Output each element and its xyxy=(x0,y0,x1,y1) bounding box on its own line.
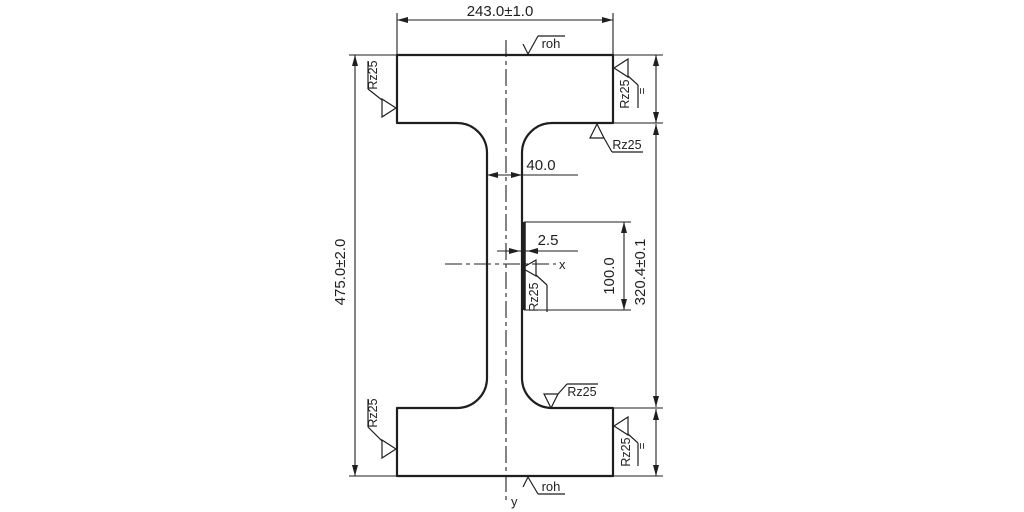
roughness-symbol-above-bottom-flange: Rz25 xyxy=(544,384,598,408)
roughness-symbol-bottom-right-face: Rz25 = xyxy=(614,417,649,467)
axis-label-x: x xyxy=(559,257,566,272)
dim-value-overall-height: 475.0±2.0 xyxy=(332,239,349,306)
arrow-left-icon xyxy=(527,248,538,254)
dim-overall-height: 475.0±2.0 xyxy=(332,55,396,476)
arrow-down-icon xyxy=(621,299,627,310)
roughness-check-icon xyxy=(528,477,538,494)
roughness-triangle-icon xyxy=(544,394,558,408)
roughness-value: Rz25 xyxy=(366,60,380,89)
arrow-down-icon xyxy=(653,112,659,123)
leader-line xyxy=(558,384,567,394)
arrow-left-icon xyxy=(397,17,408,23)
arrow-up-icon xyxy=(653,124,659,135)
drawing-canvas: x y 243.0±1.0 475.0±2.0 40.0 2.5 xyxy=(0,0,1024,512)
roughness-triangle-icon xyxy=(382,99,396,117)
roughness-value: Rz25 xyxy=(612,138,641,152)
arrow-right-icon xyxy=(511,172,522,178)
dim-web-width: 40.0 xyxy=(487,157,578,178)
raw-surface-label: roh xyxy=(542,479,561,494)
leader-line xyxy=(368,89,382,100)
roughness-value: Rz25 xyxy=(527,282,541,311)
arrow-up-icon xyxy=(653,409,659,420)
arrow-down-icon xyxy=(653,465,659,476)
centerlines: x y xyxy=(445,40,566,509)
roughness-triangle-icon xyxy=(614,417,628,435)
roughness-triangle-icon xyxy=(590,124,604,138)
roughness-check-icon xyxy=(523,44,528,54)
leader-line xyxy=(368,427,382,441)
roughness-symbol-bottom-left: Rz25 xyxy=(366,398,396,458)
roughness-value: Rz25 xyxy=(567,385,596,399)
arrow-up-icon xyxy=(352,55,358,66)
roughness-check-icon xyxy=(528,36,538,54)
arrow-left-icon xyxy=(487,172,498,178)
beam-profile xyxy=(397,55,613,476)
leader-line xyxy=(604,138,612,152)
raw-surface-label: roh xyxy=(542,36,561,51)
roughness-value: Rz25 xyxy=(618,79,632,108)
roughness-symbol-top-right-face: Rz25 = xyxy=(614,59,649,109)
arrow-right-icon xyxy=(509,248,520,254)
arrow-up-icon xyxy=(653,55,659,66)
dim-seam-thickness: 2.5 xyxy=(497,232,578,254)
lay-direction-symbol: = xyxy=(635,442,649,449)
ibeam-outline xyxy=(397,55,613,476)
arrow-down-icon xyxy=(653,396,659,407)
roughness-check-icon xyxy=(523,477,528,487)
arrow-right-icon xyxy=(602,17,613,23)
roughness-triangle-icon xyxy=(382,440,396,458)
roughness-value: Rz25 xyxy=(366,398,380,427)
arrow-up-icon xyxy=(621,222,627,233)
dim-value-flange-width: 243.0±1.0 xyxy=(467,3,534,20)
ibeam-technical-drawing: x y 243.0±1.0 475.0±2.0 40.0 2.5 xyxy=(0,0,1024,512)
dim-value-seam-length: 100.0 xyxy=(601,257,618,295)
dim-inner-height: 320.4±0.1 xyxy=(613,123,663,408)
dim-flange-width: 243.0±1.0 xyxy=(397,3,613,54)
dim-value-inner-height: 320.4±0.1 xyxy=(632,239,649,306)
roughness-triangle-icon xyxy=(614,59,628,77)
raw-surface-symbol-top: roh xyxy=(523,36,565,54)
roughness-symbol-under-top-flange: Rz25 xyxy=(590,124,643,152)
dim-value-seam-thickness: 2.5 xyxy=(538,232,559,249)
roughness-value: Rz25 xyxy=(619,437,633,466)
lay-direction-symbol: = xyxy=(635,87,649,94)
arrow-down-icon xyxy=(352,465,358,476)
axis-label-y: y xyxy=(511,494,518,509)
dim-value-web-width: 40.0 xyxy=(526,157,555,174)
raw-surface-symbol-bottom: roh xyxy=(523,477,565,494)
roughness-symbol-top-left: Rz25 xyxy=(366,60,396,117)
